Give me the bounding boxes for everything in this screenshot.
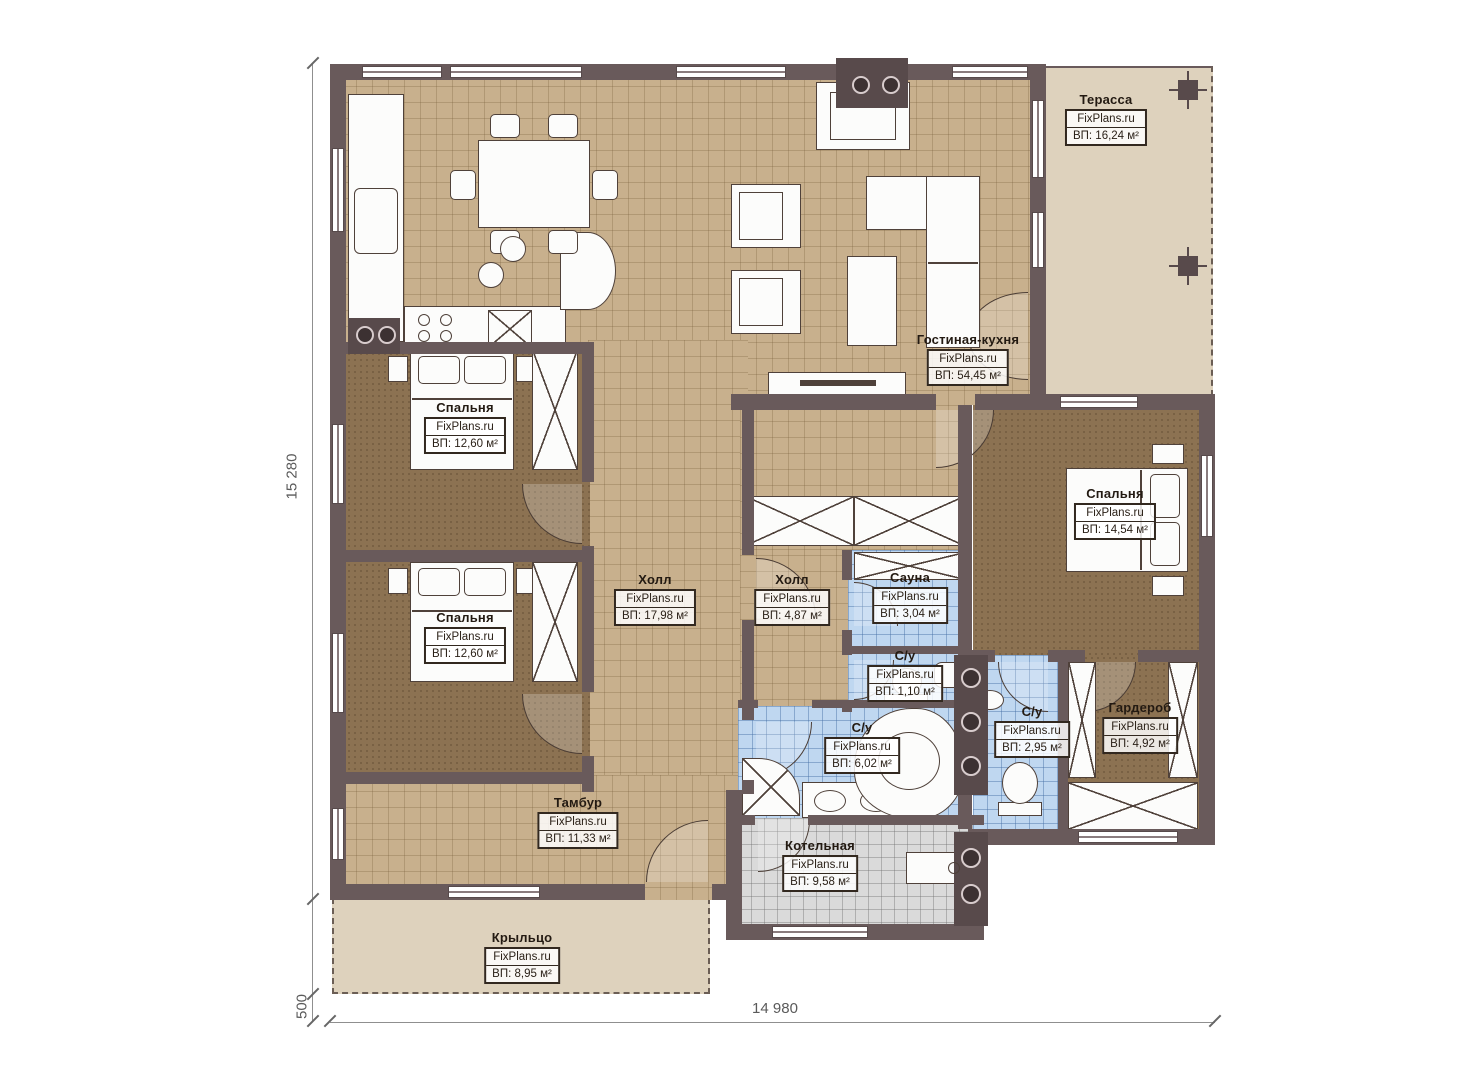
window-dining	[450, 66, 582, 78]
watermark: FixPlans.ru	[1104, 719, 1176, 736]
wall-bath-boiler-b	[808, 815, 984, 825]
wall-bedroom-separator	[344, 550, 594, 562]
window-kitchen-left	[332, 148, 344, 232]
watermark: FixPlans.ru	[1067, 111, 1145, 128]
window-bedroom-bottom	[332, 633, 344, 713]
dimension-width: 14 980	[735, 1000, 815, 1017]
room-name: Терасса	[1065, 92, 1147, 107]
floor-plan: Терасса FixPlans.ru ВП: 16,24 м² Гостина…	[0, 0, 1473, 1080]
watermark: FixPlans.ru	[869, 667, 941, 684]
wall-vestibule-right	[726, 790, 742, 940]
room-area: ВП: 3,04 м²	[874, 606, 946, 622]
dimension-height: 15 280	[284, 447, 301, 507]
room-area: ВП: 14,54 м²	[1076, 522, 1154, 538]
room-label-hall-small: Холл FixPlans.ru ВП: 4,87 м²	[754, 572, 830, 626]
room-info-box: FixPlans.ru ВП: 6,02 м²	[824, 737, 900, 774]
stove-burner	[418, 330, 430, 342]
flue-icon	[356, 326, 374, 344]
room-area: ВП: 9,58 м²	[784, 874, 856, 890]
dimension-tick	[307, 57, 320, 70]
room-name: Тамбур	[537, 795, 618, 810]
room-info-box: FixPlans.ru ВП: 17,98 м²	[614, 589, 696, 626]
coffee-table	[847, 256, 897, 346]
room-name: Спальня	[424, 610, 506, 625]
nightstand	[388, 568, 408, 594]
room-label-hall-main: Холл FixPlans.ru ВП: 17,98 м²	[614, 572, 696, 626]
stove-burner	[440, 314, 452, 326]
wall-bath-boiler-a	[726, 815, 755, 825]
room-area: ВП: 1,10 м²	[869, 684, 941, 700]
room-info-box: FixPlans.ru ВП: 2,95 м²	[994, 721, 1070, 758]
wall-hall-west-a	[582, 342, 594, 482]
room-area: ВП: 54,45 м²	[929, 368, 1007, 384]
window-bedroom-top	[332, 424, 344, 504]
dimension-tick	[324, 1015, 337, 1028]
pillow	[464, 568, 506, 596]
room-label-sauna: Сауна FixPlans.ru ВП: 3,04 м²	[872, 570, 948, 624]
dining-chair	[490, 114, 520, 138]
washbasin	[814, 790, 846, 812]
window-boiler	[772, 926, 868, 938]
watermark: FixPlans.ru	[826, 739, 898, 756]
pillow	[418, 356, 460, 384]
room-area: ВП: 6,02 м²	[826, 756, 898, 772]
room-info-box: FixPlans.ru ВП: 11,33 м²	[537, 812, 618, 849]
window-wardrobe-south	[1078, 831, 1178, 843]
dining-table	[478, 140, 590, 228]
room-label-wc-small: С/у FixPlans.ru ВП: 1,10 м²	[867, 648, 943, 702]
window-terrace-wall-1	[1032, 100, 1044, 178]
flue-icon	[961, 756, 981, 776]
nightstand	[388, 356, 408, 382]
watermark: FixPlans.ru	[486, 949, 558, 966]
dining-chair	[548, 114, 578, 138]
floor-hall-main	[588, 340, 748, 800]
dimension-line-bottom	[330, 1022, 1215, 1023]
window-living-top-1	[676, 66, 786, 78]
flue-icon	[852, 76, 870, 94]
room-info-box: FixPlans.ru ВП: 9,58 м²	[782, 855, 858, 892]
wall-bottom-left-b	[712, 884, 742, 900]
nightstand	[1152, 444, 1184, 464]
wall-bedroom3-south-c	[1138, 650, 1205, 662]
watermark: FixPlans.ru	[874, 589, 946, 606]
window-vestibule-left	[332, 808, 344, 860]
room-area: ВП: 4,87 м²	[756, 608, 828, 624]
room-label-terrace: Терасса FixPlans.ru ВП: 16,24 м²	[1065, 92, 1147, 146]
dimension-line-left	[312, 64, 313, 1022]
kitchen-sink	[354, 188, 398, 254]
flue-icon	[961, 712, 981, 732]
stove-burner	[418, 314, 430, 326]
room-info-box: FixPlans.ru ВП: 3,04 м²	[872, 587, 948, 624]
room-name: Котельная	[782, 838, 858, 853]
dimension-porch-offset: 500	[294, 985, 311, 1029]
wall-bedroom2-south	[344, 772, 594, 784]
flue-icon	[378, 326, 396, 344]
wardrobe-cabinet	[1068, 662, 1096, 778]
window-terrace-wall-2	[1032, 212, 1044, 268]
window-bedroom-right	[1201, 455, 1213, 537]
terrace-column	[1178, 80, 1198, 100]
window-bedroom-right-north	[1060, 396, 1138, 408]
watermark: FixPlans.ru	[784, 857, 856, 874]
flue-icon	[961, 884, 981, 904]
watermark: FixPlans.ru	[539, 814, 616, 831]
boiler-dial	[948, 862, 960, 874]
room-label-living-kitchen: Гостиная-кухня FixPlans.ru ВП: 54,45 м²	[917, 332, 1019, 386]
room-name: С/у	[824, 720, 900, 735]
room-area: ВП: 16,24 м²	[1067, 128, 1145, 144]
room-label-wc-master: С/у FixPlans.ru ВП: 2,95 м²	[994, 704, 1070, 758]
terrace-column	[1178, 256, 1198, 276]
wall-bath-north-a	[738, 700, 758, 708]
room-label-boiler: Котельная FixPlans.ru ВП: 9,58 м²	[782, 838, 858, 892]
built-in-closet	[746, 496, 854, 546]
dimension-tick	[307, 893, 320, 906]
room-area: ВП: 8,95 м²	[486, 966, 558, 982]
room-info-box: FixPlans.ru ВП: 12,60 м²	[424, 417, 506, 454]
room-name: Гардероб	[1102, 700, 1178, 715]
wardrobe-cabinet	[532, 562, 578, 682]
armchair-cushion	[739, 278, 783, 326]
room-name: Спальня	[424, 400, 506, 415]
watermark: FixPlans.ru	[996, 723, 1068, 740]
watermark: FixPlans.ru	[929, 351, 1007, 368]
room-name: С/у	[867, 648, 943, 663]
room-name: Гостиная-кухня	[917, 332, 1019, 347]
room-info-box: FixPlans.ru ВП: 4,92 м²	[1102, 717, 1178, 754]
room-area: ВП: 12,60 м²	[426, 646, 504, 662]
watermark: FixPlans.ru	[1076, 505, 1154, 522]
vent-stack-boiler	[954, 832, 988, 926]
room-label-bathroom: С/у FixPlans.ru ВП: 6,02 м²	[824, 720, 900, 774]
sofa-cushion-line	[928, 262, 978, 264]
room-info-box: FixPlans.ru ВП: 54,45 м²	[927, 349, 1009, 386]
room-name: Сауна	[872, 570, 948, 585]
watermark: FixPlans.ru	[756, 591, 828, 608]
room-name: Крыльцо	[484, 930, 560, 945]
window-kitchen-top	[362, 66, 442, 78]
watermark: FixPlans.ru	[616, 591, 694, 608]
toilet-bowl	[1002, 762, 1038, 804]
room-label-bedroom-right: Спальня FixPlans.ru ВП: 14,54 м²	[1074, 486, 1156, 540]
room-name: С/у	[994, 704, 1070, 719]
watermark: FixPlans.ru	[426, 419, 504, 436]
room-label-bedroom-bottom: Спальня FixPlans.ru ВП: 12,60 м²	[424, 610, 506, 664]
stove-burner	[440, 330, 452, 342]
room-area: ВП: 2,95 м²	[996, 740, 1068, 756]
stool	[478, 262, 504, 288]
built-in-closet	[854, 496, 964, 546]
dining-chair	[450, 170, 476, 200]
room-info-box: FixPlans.ru ВП: 16,24 м²	[1065, 109, 1147, 146]
room-label-porch: Крыльцо FixPlans.ru ВП: 8,95 м²	[484, 930, 560, 984]
armchair-cushion	[739, 192, 783, 240]
flue-icon	[882, 76, 900, 94]
tv-screen	[800, 380, 876, 386]
pillow	[418, 568, 460, 596]
room-label-vestibule: Тамбур FixPlans.ru ВП: 11,33 м²	[537, 795, 618, 849]
wall-central-west-c	[742, 780, 754, 794]
window-living-top-2	[952, 66, 1028, 78]
room-area: ВП: 12,60 м²	[426, 436, 504, 452]
room-name: Спальня	[1074, 486, 1156, 501]
wall-sauna-west-a	[842, 550, 852, 580]
dimension-tick	[1209, 1015, 1222, 1028]
wall-hall-west-b	[582, 546, 594, 692]
room-area: ВП: 17,98 м²	[616, 608, 694, 624]
room-name: Холл	[754, 572, 830, 587]
toilet-tank	[998, 802, 1042, 816]
window-vestibule-south	[448, 886, 540, 898]
flue-icon	[961, 668, 981, 688]
room-area: ВП: 4,92 м²	[1104, 736, 1176, 752]
room-label-bedroom-top: Спальня FixPlans.ru ВП: 12,60 м²	[424, 400, 506, 454]
dining-chair	[548, 230, 578, 254]
room-name: Холл	[614, 572, 696, 587]
flue-icon	[961, 848, 981, 868]
room-info-box: FixPlans.ru ВП: 8,95 м²	[484, 947, 560, 984]
room-area: ВП: 11,33 м²	[539, 831, 616, 847]
room-info-box: FixPlans.ru ВП: 12,60 м²	[424, 627, 506, 664]
stool	[500, 236, 526, 262]
room-info-box: FixPlans.ru ВП: 1,10 м²	[867, 665, 943, 702]
room-info-box: FixPlans.ru ВП: 14,54 м²	[1074, 503, 1156, 540]
room-info-box: FixPlans.ru ВП: 4,87 м²	[754, 589, 830, 626]
wall-central-west-a	[742, 405, 754, 555]
wall-living-south-left	[731, 394, 936, 410]
room-label-wardrobe: Гардероб FixPlans.ru ВП: 4,92 м²	[1102, 700, 1178, 754]
dining-chair	[592, 170, 618, 200]
wardrobe-cabinet	[1068, 782, 1198, 830]
wardrobe-cabinet	[532, 350, 578, 470]
watermark: FixPlans.ru	[426, 629, 504, 646]
pillow	[464, 356, 506, 384]
nightstand	[1152, 576, 1184, 596]
